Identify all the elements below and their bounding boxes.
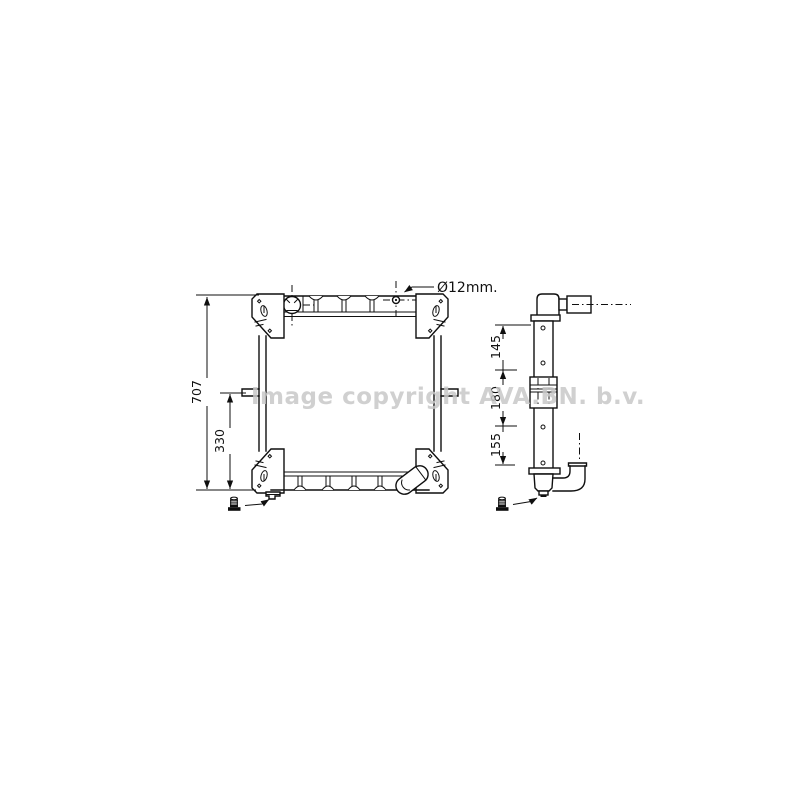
inlet-pipe-neck (559, 299, 567, 310)
drain-arrow-side (513, 498, 537, 505)
dim-330-label: 330 (212, 429, 227, 453)
dim-155-label: 155 (488, 433, 503, 457)
watermark: Image copyright AVA.BN. b.v. (251, 384, 645, 410)
drain-tab-side (539, 491, 548, 497)
drain-arrow-front (245, 500, 269, 506)
technical-drawing-canvas: Ø12mm. (0, 0, 800, 800)
side-bottom-tank (534, 474, 553, 491)
drain-tab-front (266, 492, 280, 499)
side-top-cap (537, 294, 559, 316)
diameter-label: Ø12mm. (437, 280, 498, 296)
side-top-flange (531, 315, 560, 321)
dim-145-label: 145 (488, 335, 503, 359)
side-bottom-flange (529, 468, 560, 474)
radiator-technical-drawing: Ø12mm. (0, 0, 800, 800)
dimension-330: 330 (212, 393, 246, 489)
dim-707-label: 707 (189, 380, 204, 404)
outlet-hose-side (553, 433, 587, 491)
